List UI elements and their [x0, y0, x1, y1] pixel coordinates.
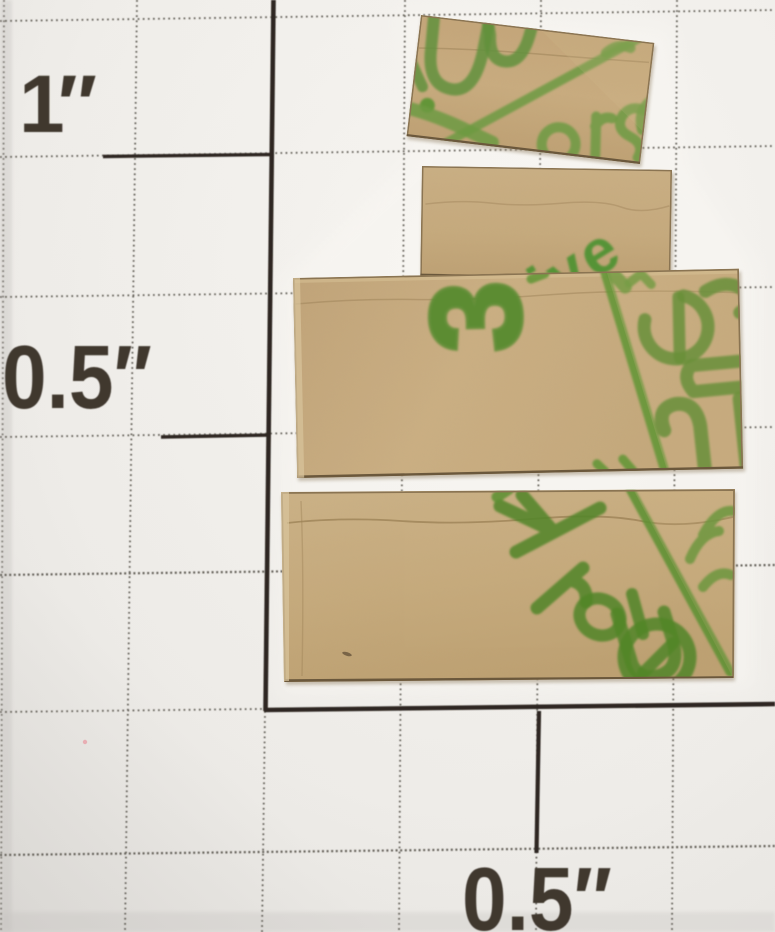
svg-text:3: 3 [404, 279, 548, 353]
svg-text:1″: 1″ [19, 59, 97, 150]
svg-text:0.5″: 0.5″ [462, 850, 612, 932]
svg-text:0.5″: 0.5″ [2, 328, 152, 428]
